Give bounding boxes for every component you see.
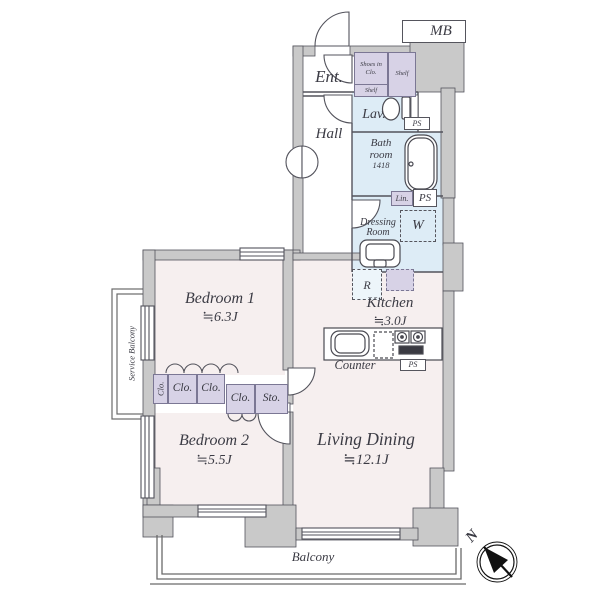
closet-a: Clo. bbox=[168, 374, 197, 404]
kitchen-sink-icon bbox=[331, 331, 369, 356]
pipe-space-3: PS bbox=[400, 359, 426, 371]
closet-c: Clo. bbox=[226, 384, 255, 414]
closet-vertical: Clo. bbox=[153, 374, 168, 404]
entrance-door-swing bbox=[315, 12, 349, 46]
storage-box: Sto. bbox=[255, 384, 288, 414]
washbasin-icon bbox=[360, 240, 400, 267]
bedroom2-label: Bedroom 2 bbox=[152, 431, 276, 451]
closet-dashed-box bbox=[386, 269, 414, 291]
linen-closet: Lin. bbox=[391, 191, 413, 206]
floor-plan: MB Ent. Shoes in Clo. Shelf Shelf Hall L… bbox=[0, 0, 600, 600]
shoes-closet: Shoes in Clo. Shelf bbox=[354, 52, 388, 97]
shoes-closet-label: Shoes in Clo. bbox=[355, 53, 387, 84]
hall-label: Hall bbox=[306, 126, 352, 144]
shoes-closet-shelf: Shelf bbox=[355, 84, 387, 96]
lavatory-label: Lav. bbox=[356, 106, 392, 124]
entrance-label: Ent. bbox=[306, 66, 352, 88]
washer-box: W bbox=[400, 210, 436, 242]
bathroom-name: Bath room bbox=[364, 138, 398, 161]
bedroom1-label: Bedroom 1 bbox=[158, 289, 282, 309]
living-dining-label: Living Dining bbox=[292, 428, 440, 450]
dressing-room-label: Dressing Room bbox=[352, 214, 404, 242]
service-balcony-label: Service Balcony bbox=[118, 299, 146, 409]
dishwasher-dashed bbox=[374, 332, 393, 358]
bedroom1-size: ≒6.3J bbox=[158, 310, 282, 327]
bedroom2-size: ≒5.5J bbox=[152, 453, 276, 470]
living-dining-size: ≒12.1J bbox=[292, 452, 440, 470]
bathtub-icon bbox=[405, 135, 437, 192]
side-shelf: Shelf bbox=[388, 52, 416, 97]
kitchen-counter bbox=[324, 328, 442, 360]
living-floor-ext bbox=[296, 508, 416, 530]
kitchen-size: ≒3.0J bbox=[354, 313, 426, 328]
hall-door-left bbox=[286, 146, 302, 178]
pipe-space-1: PS bbox=[404, 117, 430, 130]
compass-icon bbox=[477, 542, 517, 582]
bathroom-label: Bath room 1418 bbox=[358, 137, 404, 171]
closet-b: Clo. bbox=[197, 374, 225, 404]
bathroom-size: 1418 bbox=[373, 161, 390, 170]
hall-door-right bbox=[302, 146, 318, 178]
kitchen-label: Kitchen bbox=[350, 295, 430, 313]
floor-plan-drawing bbox=[0, 0, 600, 600]
pipe-space-2: PS bbox=[413, 189, 437, 207]
lavatory-door-swing bbox=[324, 95, 352, 123]
balcony-label: Balcony bbox=[278, 549, 348, 565]
counter-label: Counter bbox=[326, 358, 384, 373]
meter-box: MB bbox=[402, 20, 466, 43]
